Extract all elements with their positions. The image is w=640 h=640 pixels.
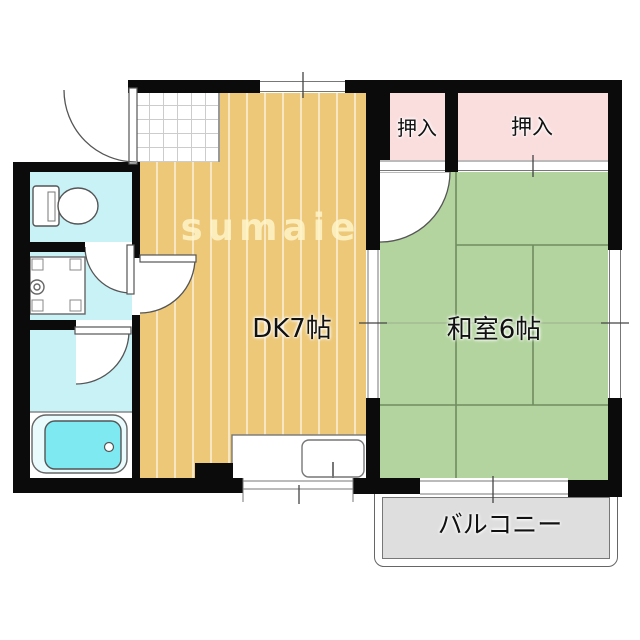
dk-door — [140, 258, 195, 313]
entrance-door-panel — [129, 88, 137, 164]
dk-door-panel — [140, 255, 196, 262]
dining-kitchen-label: DK7帖 — [212, 311, 372, 341]
window-top — [260, 72, 345, 98]
kitchen-sink-counter — [232, 435, 368, 480]
window-right — [601, 250, 629, 398]
bathroom-door — [76, 331, 129, 384]
window-balcony — [420, 476, 568, 503]
watermark-text: sumaie — [188, 205, 353, 249]
washitsu-door — [380, 172, 450, 242]
window-kitchen — [243, 478, 353, 504]
balcony-label: バルコニー — [400, 509, 600, 537]
bathtub-fixture — [32, 415, 127, 473]
bathroom-door-panel — [75, 327, 131, 334]
washing-machine-pan — [30, 257, 85, 314]
entrance-door-arc — [64, 90, 136, 162]
toilet-door-panel — [127, 245, 134, 294]
toilet-door — [85, 247, 131, 293]
floorplan-canvas: sumaie 押入 押入 DK7帖 和室6帖 バルコニー — [0, 0, 640, 640]
japanese-room-label: 和室6帖 — [404, 312, 584, 342]
toilet-fixture — [33, 186, 98, 226]
closet-right-label: 押入 — [462, 112, 602, 140]
closet-left-label: 押入 — [382, 112, 452, 140]
